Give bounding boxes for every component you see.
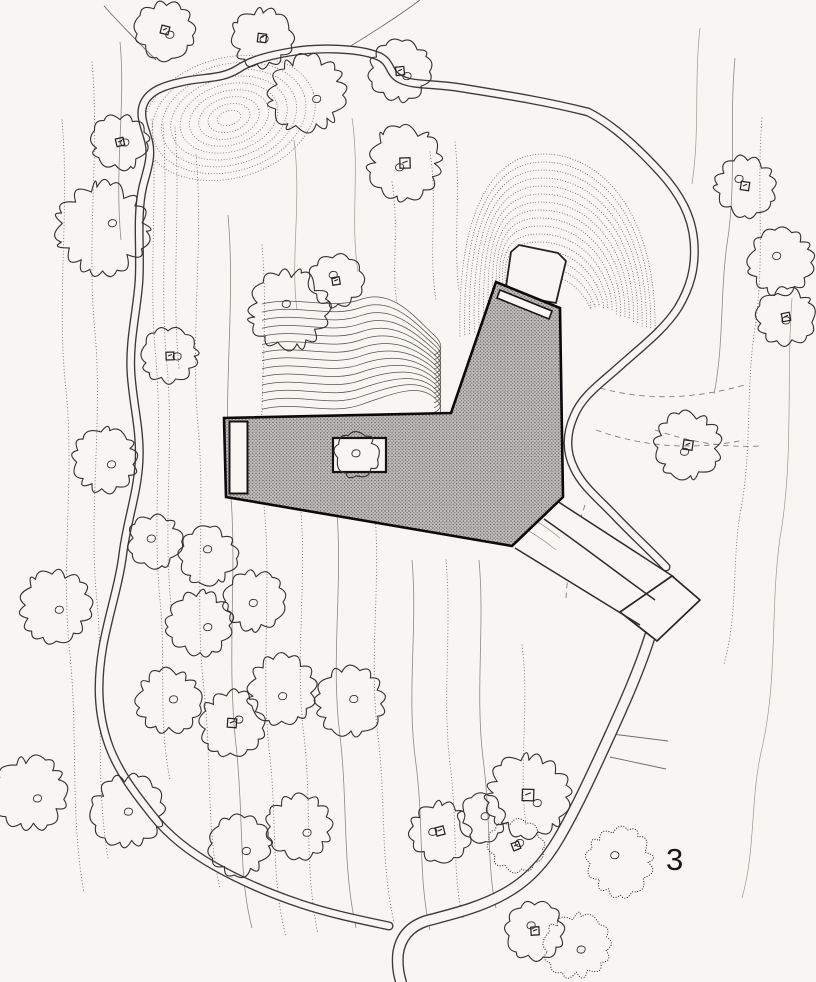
figure-number: 3 (666, 844, 683, 875)
site-plan-drawing (0, 0, 816, 982)
courtyard-opening (230, 422, 248, 494)
site-plan-page: 3 (0, 0, 816, 982)
